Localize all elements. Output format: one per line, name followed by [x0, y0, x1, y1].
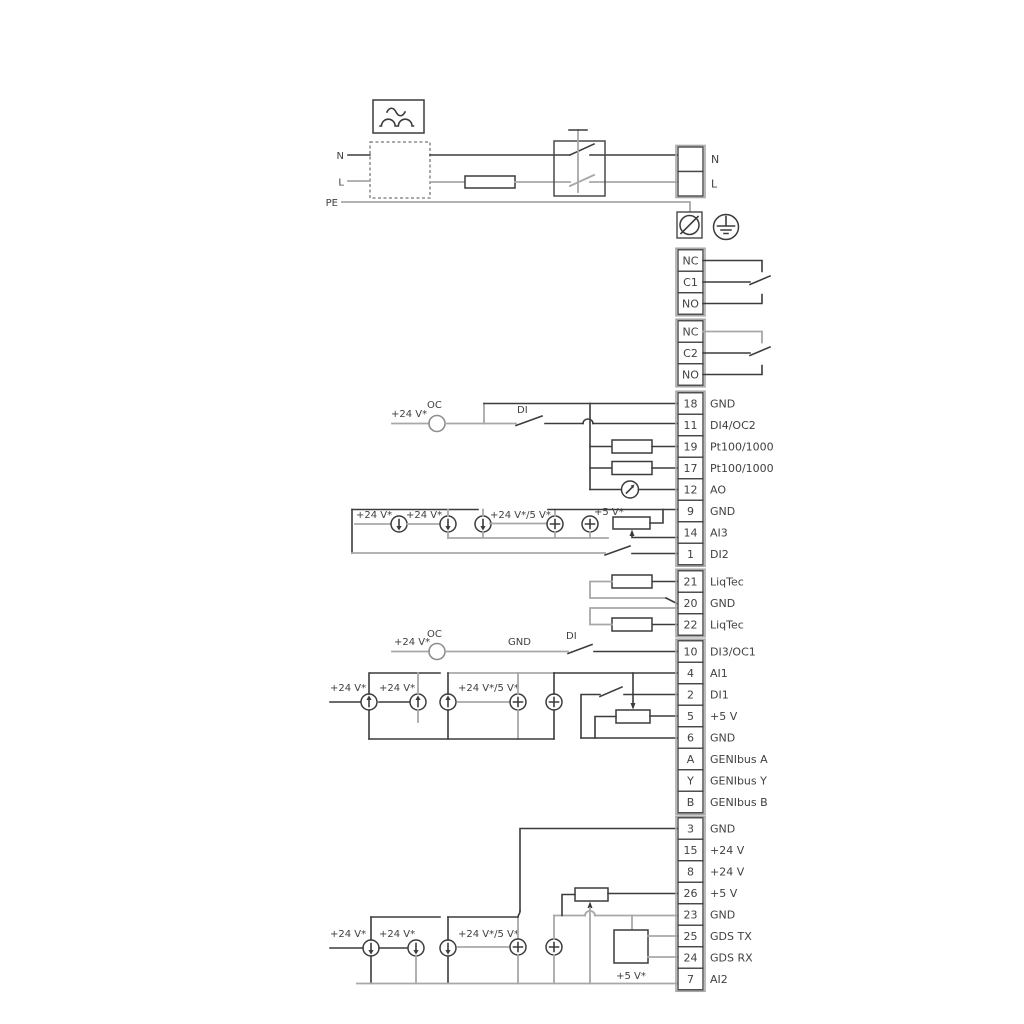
wiring-diagram: N L PE N L — [0, 0, 1024, 1024]
terminal-label: GND — [710, 732, 735, 745]
wiper-arrow — [588, 902, 593, 909]
current-source-icon — [546, 939, 562, 955]
terminal-number: 25 — [684, 930, 698, 943]
wire — [703, 332, 762, 343]
resistor-symbol — [612, 575, 652, 588]
terminal-number: 3 — [687, 823, 694, 836]
l-right-label: L — [711, 178, 718, 191]
terminal-label: NO — [682, 369, 699, 382]
plus24-label: +24 V* — [379, 683, 415, 694]
terminal-label: GND — [710, 597, 735, 610]
emc-filter-box — [370, 142, 430, 198]
terminal-number: Y — [686, 775, 694, 788]
switch-blade — [600, 687, 622, 697]
di4-pt100-ao-wiring: +24 V* OC DI — [391, 400, 678, 498]
wire — [595, 717, 616, 739]
terminal-label: GENIbus B — [710, 796, 768, 809]
terminal-label: GENIbus Y — [710, 775, 767, 788]
terminal-label: GDS TX — [710, 930, 752, 943]
current-source-icon — [391, 516, 407, 532]
terminal-number: 11 — [684, 419, 698, 432]
current-source-icon — [361, 694, 377, 710]
mains-switch-box — [554, 141, 605, 196]
wiring-diagram-page: N L PE N L — [0, 0, 1024, 1024]
terminal-label: DI1 — [710, 689, 729, 702]
terminal-label: +24 V — [710, 844, 745, 857]
current-source-icon — [510, 939, 526, 955]
terminal-label: +24 V — [710, 866, 745, 879]
wire — [703, 295, 762, 304]
liqtec-wiring — [590, 575, 678, 631]
current-source-icon — [547, 516, 563, 532]
terminal-label: GND — [710, 398, 735, 411]
terminal-number: 8 — [687, 866, 694, 879]
terminal-number: A — [687, 753, 695, 766]
wiper-arrow — [630, 530, 635, 537]
fuse-symbol — [465, 176, 515, 188]
terminal-number: 21 — [684, 576, 698, 589]
terminal-strip-g3: 10DI3/OC1 4AI1 2DI1 5+5 V 6GND AGENIbus … — [676, 639, 768, 814]
ai3-di2-wiring: +24 V* +24 V* +24 V*/5 V* +5 V* — [352, 507, 678, 555]
terminal-label: C1 — [683, 276, 698, 289]
terminal-label: DI3/OC1 — [710, 646, 756, 659]
current-source-icon — [510, 694, 526, 710]
terminal-number: 5 — [687, 710, 694, 723]
gds-sensor-box — [614, 930, 648, 963]
terminal-label: GND — [710, 909, 735, 922]
wire-hop — [583, 419, 593, 424]
terminal-label: GND — [710, 823, 735, 836]
wiper-arrow — [631, 703, 636, 710]
terminal-number: 6 — [687, 732, 694, 745]
terminal-label: AI1 — [710, 667, 728, 680]
l-left-label: L — [338, 178, 344, 189]
terminal-label: GENIbus A — [710, 753, 768, 766]
plus24-label: +24 V* — [379, 929, 415, 940]
di-label: DI — [566, 631, 577, 642]
terminal-box — [678, 147, 703, 172]
terminal-number: 9 — [687, 505, 694, 518]
potentiometer-symbol — [616, 710, 650, 723]
current-source-icon — [546, 694, 562, 710]
terminal-label: DI2 — [710, 548, 729, 561]
wire — [703, 261, 762, 272]
resistor-symbol — [612, 618, 652, 631]
n-right-label: N — [711, 153, 719, 166]
plus24or5-label: +24 V*/5 V* — [490, 510, 551, 521]
relay1-block: NC C1 NO — [676, 248, 770, 316]
switch-blade — [605, 546, 630, 555]
switch-blade — [570, 144, 594, 155]
oc-label: OC — [427, 629, 442, 640]
terminal-strip-g2: 21LiqTec 20GND 22LiqTec — [676, 569, 744, 637]
switch-blade — [750, 276, 770, 285]
plus24-label: +24 V* — [391, 409, 427, 420]
terminal-label: +5 V — [710, 710, 738, 723]
mains-section: N L PE N L — [326, 100, 739, 240]
terminal-label: GND — [710, 505, 735, 518]
current-source-icon — [440, 940, 456, 956]
switch-blade — [516, 416, 542, 426]
rectifier-box — [373, 100, 424, 133]
switch-blade — [568, 645, 592, 654]
plus24-label: +24 V* — [330, 929, 366, 940]
terminal-label: AI3 — [710, 527, 728, 540]
terminal-number: 18 — [684, 398, 698, 411]
terminal-label: DI4/OC2 — [710, 419, 756, 432]
di3-wiring: +24 V* OC GND DI — [392, 629, 678, 660]
relay2-block: NC C2 NO — [676, 319, 770, 387]
ai2-gds-wiring: +24 V* +24 V* +24 V*/5 V* +5 V* — [330, 829, 678, 984]
n-left-label: N — [337, 151, 344, 162]
terminal-label: LiqTec — [710, 576, 744, 589]
terminal-number: 1 — [687, 548, 694, 561]
terminal-number: 17 — [684, 462, 698, 475]
current-source-icon — [475, 516, 491, 532]
terminal-number: 7 — [687, 973, 694, 986]
terminal-label: LiqTec — [710, 619, 744, 632]
plus24-label: +24 V* — [356, 510, 392, 521]
switch-blade — [570, 175, 594, 186]
resistor-symbol — [612, 462, 652, 475]
terminal-label: Pt100/1000 — [710, 441, 774, 454]
plus24-label: +24 V* — [406, 510, 442, 521]
terminal-label: NO — [682, 298, 699, 311]
plus24-label: +24 V* — [330, 683, 366, 694]
plus24or5-label: +24 V*/5 V* — [458, 929, 519, 940]
pe-left-label: PE — [326, 198, 338, 209]
current-source-icon — [410, 694, 426, 710]
terminal-number: 12 — [684, 484, 698, 497]
terminal-number: 26 — [684, 887, 698, 900]
terminal-label: Pt100/1000 — [710, 462, 774, 475]
gnd-label: GND — [508, 637, 531, 648]
current-source-icon — [582, 516, 598, 532]
terminal-strip-g1: 18GND 11DI4/OC2 19Pt100/1000 17Pt100/100… — [676, 391, 774, 566]
terminal-number: 22 — [684, 619, 698, 632]
terminal-number: 20 — [684, 597, 698, 610]
terminal-number: 2 — [687, 689, 694, 702]
terminal-number: 14 — [684, 527, 698, 540]
terminal-number: 10 — [684, 646, 698, 659]
oc-label: OC — [427, 400, 442, 411]
switch-blade — [750, 347, 770, 356]
potentiometer-symbol — [613, 517, 650, 529]
terminal-label: NC — [683, 255, 699, 268]
terminal-label: NC — [683, 326, 699, 339]
terminal-strip-g4: 3GND 15+24 V 8+24 V 26+5 V 23GND 25GDS T… — [676, 816, 753, 991]
di-label: DI — [517, 405, 528, 416]
current-source-icon — [440, 694, 456, 710]
current-source-icon — [408, 940, 424, 956]
wire — [562, 895, 575, 916]
current-source-icon — [363, 940, 379, 956]
plus24-label: +24 V* — [394, 637, 430, 648]
plus5-label: +5 V* — [616, 971, 646, 982]
current-source-icon — [440, 516, 456, 532]
terminal-box — [678, 172, 703, 197]
terminal-number: 19 — [684, 441, 698, 454]
open-collector-icon — [429, 644, 445, 660]
terminal-number: 4 — [687, 667, 694, 680]
resistor-symbol — [612, 440, 652, 453]
terminal-number: 23 — [684, 909, 698, 922]
pe-wire — [342, 202, 690, 212]
wire — [632, 536, 678, 538]
terminal-label: AO — [710, 484, 726, 497]
terminal-label: GDS RX — [710, 952, 753, 965]
terminal-label: C2 — [683, 347, 698, 360]
terminal-label: AI2 — [710, 973, 728, 986]
open-collector-icon — [429, 416, 445, 432]
plus24or5-label: +24 V*/5 V* — [458, 683, 519, 694]
terminal-label: +5 V — [710, 887, 738, 900]
ai1-di1-wiring: +24 V* +24 V* +24 V*/5 V* — [330, 673, 678, 739]
terminal-number: B — [687, 796, 695, 809]
wire — [703, 366, 762, 375]
terminal-number: 24 — [684, 952, 698, 965]
terminal-number: 15 — [684, 844, 698, 857]
potentiometer-symbol — [575, 888, 608, 901]
wire — [650, 510, 663, 524]
